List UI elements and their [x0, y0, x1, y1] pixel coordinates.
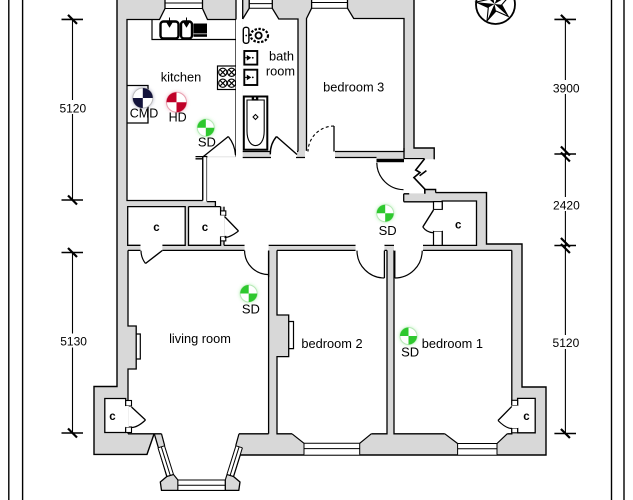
- svg-text:5120: 5120: [59, 101, 86, 115]
- svg-text:SD: SD: [379, 223, 397, 238]
- svg-text:bedroom 2: bedroom 2: [301, 336, 362, 351]
- svg-text:2420: 2420: [553, 199, 580, 213]
- svg-text:HD: HD: [169, 111, 187, 125]
- svg-text:c: c: [202, 222, 209, 234]
- svg-text:SD: SD: [198, 135, 216, 150]
- svg-text:c: c: [153, 222, 160, 234]
- svg-text:living room: living room: [169, 331, 231, 346]
- svg-text:3900: 3900: [553, 81, 580, 95]
- svg-text:c: c: [109, 411, 116, 423]
- svg-text:CMD: CMD: [130, 106, 158, 120]
- svg-text:5130: 5130: [60, 335, 87, 349]
- svg-text:bedroom 1: bedroom 1: [422, 336, 483, 351]
- svg-text:SD: SD: [242, 301, 260, 316]
- svg-text:bedroom 3: bedroom 3: [323, 80, 384, 95]
- svg-text:kitchen: kitchen: [161, 70, 202, 85]
- svg-text:SD: SD: [401, 345, 419, 360]
- svg-text:bath: bath: [269, 49, 294, 64]
- svg-text:c: c: [523, 411, 530, 423]
- svg-text:room: room: [266, 64, 295, 79]
- svg-text:5120: 5120: [553, 336, 580, 350]
- svg-text:c: c: [455, 220, 462, 232]
